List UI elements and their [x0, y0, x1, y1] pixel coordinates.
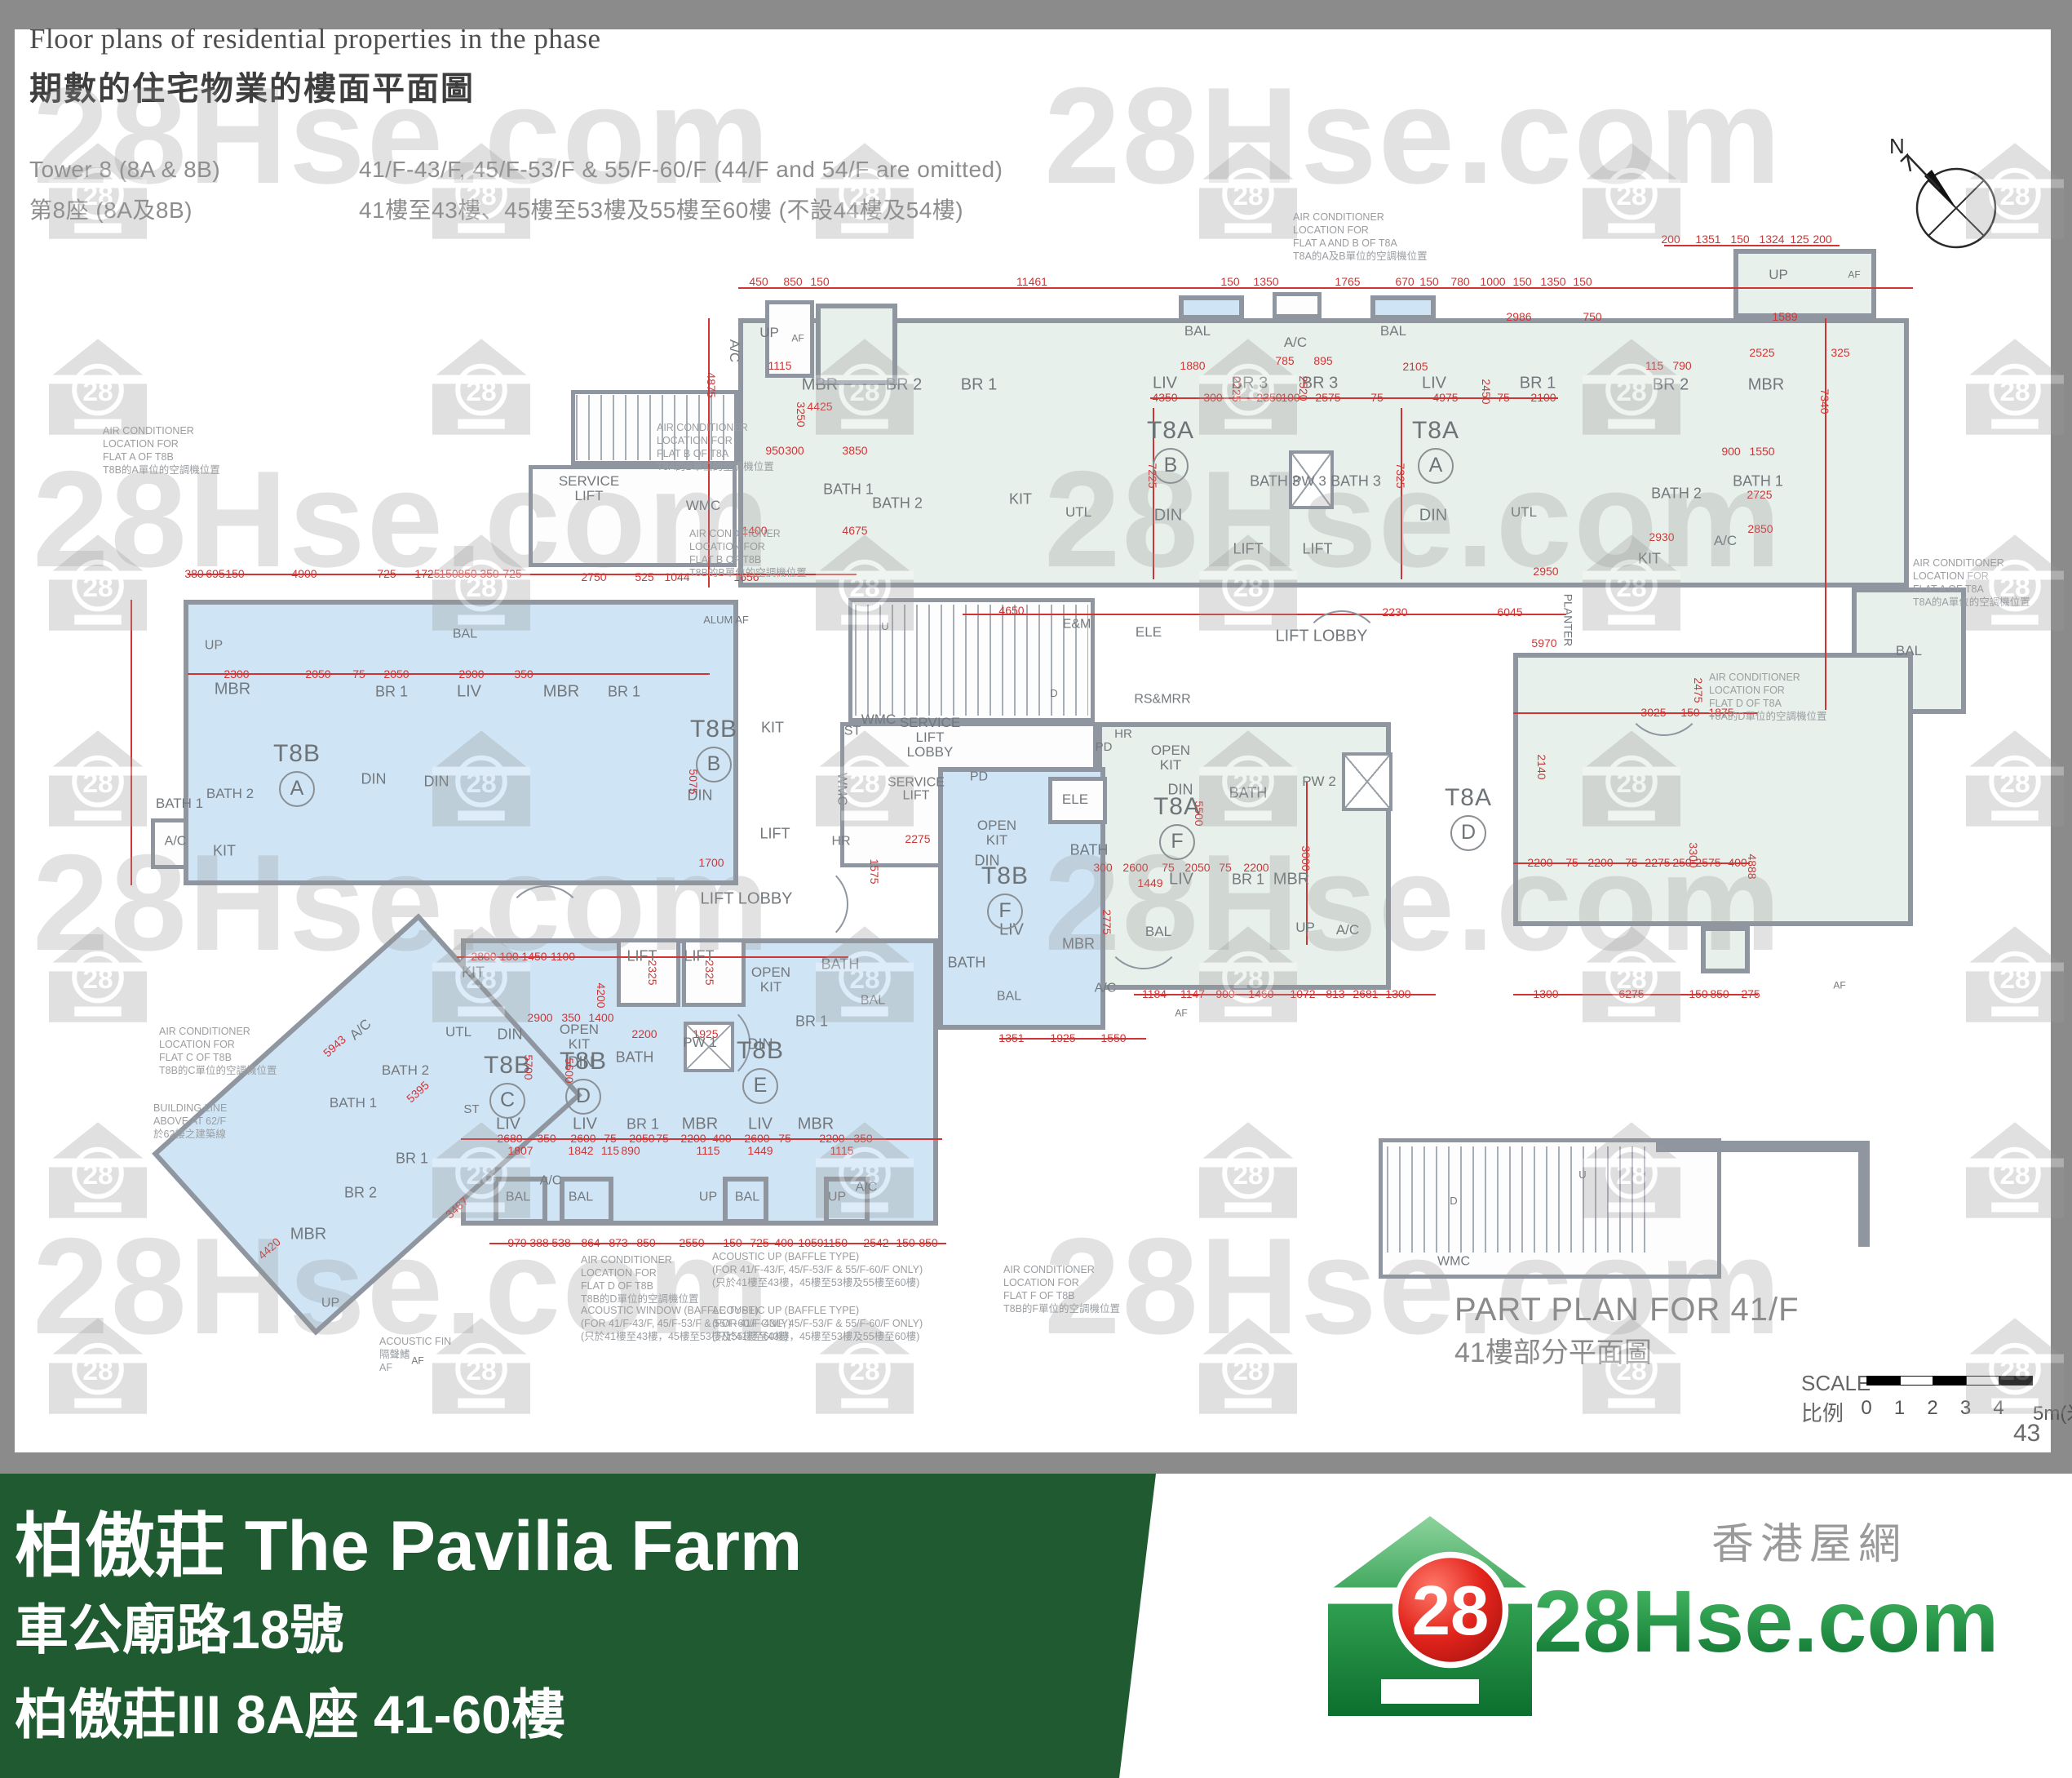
plan-note-line: T8A的B單位的空調機位置 — [657, 460, 774, 473]
room-label: DIN — [1154, 508, 1182, 525]
dimension-value: 2275 — [905, 832, 930, 845]
dimension-value: 2200 — [1243, 861, 1268, 874]
plan-note-line: LOCATION FOR — [103, 437, 220, 450]
unit-tower-label: T8A — [1412, 417, 1459, 445]
room-label: BR 1 — [961, 377, 997, 394]
scale-tick-label: 1 — [1894, 1397, 1905, 1420]
dimension-value: 1460 — [1248, 987, 1273, 1000]
dimension-value: 350 — [537, 1132, 556, 1145]
dimension-value: 1115 — [768, 359, 791, 372]
room-label: BAL — [735, 1191, 759, 1205]
page-number: 43 — [2013, 1420, 2040, 1448]
room-label: LIFT — [916, 730, 945, 745]
plan-note: BUILDING LINEABOVE AT 62/F於62樓之建築線 — [153, 1102, 227, 1141]
room-label: KIT — [986, 833, 1007, 848]
dimension-value: 4675 — [842, 524, 867, 537]
room-label: DIN — [498, 1027, 523, 1043]
plan-note: ACOUSTIC FIN隔聲鰭AF — [379, 1335, 451, 1374]
dimension-value: 2200 — [1587, 856, 1613, 869]
dimension-value: 3300 — [1687, 842, 1700, 867]
dimension-value: 2225 — [1230, 376, 1243, 401]
room-label: A/C — [727, 339, 742, 362]
dimension-line — [963, 614, 1566, 615]
dimension-value: 1765 — [1335, 275, 1360, 288]
plan-block — [1273, 292, 1322, 318]
unit-tower-label: T8A — [1147, 417, 1194, 445]
dimension-value: 4875 — [705, 372, 718, 397]
room-label: ELE — [1062, 792, 1088, 807]
dimension-value: 1880 — [1180, 359, 1205, 372]
dimension-value: 75 — [1565, 856, 1578, 869]
dimension-value: 1000 — [1480, 275, 1505, 288]
dimension-value: 2050 — [305, 667, 330, 681]
dimension-value: 2900 — [458, 667, 484, 681]
room-label: BAL — [1184, 324, 1211, 339]
dimension-value: 2200 — [1527, 856, 1552, 869]
dimension-value: 1400 — [588, 1011, 613, 1024]
room-label: BAL — [1380, 324, 1406, 339]
room-label: BR 1 — [795, 1014, 828, 1030]
room-label: PLANTER — [1562, 594, 1574, 647]
room-label: UTL — [445, 1025, 472, 1040]
dimension-value: 850 — [636, 1236, 655, 1249]
house-logo-icon: 28 — [1328, 1516, 1532, 1716]
room-label: BATH 3 — [1330, 474, 1381, 490]
dimension-value: 75 — [1497, 391, 1510, 404]
dimension-value: 75 — [352, 667, 365, 681]
plan-block — [1733, 249, 1876, 318]
plan-note: AIR CONDITIONERLOCATION FORFLAT D OF T8B… — [581, 1253, 698, 1306]
plan-note-line: FLAT D OF T8B — [581, 1279, 698, 1292]
plan-note-line: AIR CONDITIONER — [1913, 556, 2030, 570]
site-name-en: 28Hse.com — [1534, 1570, 1999, 1672]
dimension-value: 2050 — [1184, 861, 1210, 874]
plan-note-line: LOCATION FOR — [1709, 684, 1826, 697]
dimension-value: 1807 — [507, 1144, 533, 1157]
unit-flat-letter: C — [489, 1083, 525, 1119]
dimension-value: 850 — [919, 1236, 937, 1249]
room-label: A/C — [165, 836, 187, 849]
room-label: BATH 1 — [330, 1096, 377, 1111]
room-label: MBR — [682, 1116, 718, 1133]
svg-text:N: N — [1889, 134, 1905, 158]
plan-note-line: (FOR 41/F-43/F, 45/F-53/F & 55/F-60/F ON… — [712, 1263, 923, 1276]
room-label: U — [881, 621, 888, 632]
dimension-value: 350 — [514, 667, 533, 681]
room-label: LIV — [573, 1116, 597, 1133]
dimension-value: 2600 — [570, 1132, 595, 1145]
dimension-value: 1925 — [693, 1027, 718, 1040]
dimension-value: 4350 — [1152, 391, 1177, 404]
dimension-value: 2542 — [863, 1236, 888, 1249]
room-label: WMC — [835, 773, 848, 805]
dimension-value: 5075 — [687, 769, 700, 794]
room-label: MBR — [1273, 871, 1309, 889]
room-label: UP — [1295, 920, 1315, 935]
plan-note-line: (只於41樓至43樓，45樓至53樓及55樓至60樓) — [712, 1330, 923, 1343]
dimension-value: 75 — [1219, 861, 1232, 874]
scale-segment — [1933, 1376, 1967, 1386]
room-label: BR 1 — [375, 685, 408, 700]
unit-tower-label: T8B — [981, 862, 1029, 890]
scale-tick-label: 2 — [1927, 1397, 1937, 1420]
dimension-value: 115 — [601, 1144, 619, 1157]
plan-note-line: AIR CONDITIONER — [1293, 211, 1428, 224]
dimension-value: 150 — [1573, 275, 1592, 288]
scale-tick-label: 4 — [1993, 1397, 2003, 1420]
plan-note-line: LOCATION FOR — [159, 1038, 277, 1051]
room-label: BATH — [821, 957, 860, 973]
dimension-value: 300 — [785, 444, 804, 457]
dimension-value: 5600 — [563, 1057, 576, 1083]
dimension-value: 5500 — [1193, 800, 1206, 826]
room-label: BR 1 — [396, 1151, 428, 1167]
room-label: OPEN — [1151, 743, 1190, 758]
plan-note-line: ABOVE AT 62/F — [153, 1115, 227, 1128]
unit-flat-letter: F — [1159, 824, 1195, 860]
room-label: KIT — [213, 844, 236, 859]
dimension-value: 1351 — [998, 1031, 1024, 1044]
room-label: KIT — [1009, 492, 1032, 508]
room-label: AF — [1833, 981, 1845, 991]
plan-note-line: T8B的F單位的空調機位置 — [1003, 1302, 1120, 1315]
room-label: DIN — [1419, 508, 1447, 525]
plan-note-line: T8B的A單位的空調機位置 — [103, 463, 220, 477]
dimension-value: 1842 — [568, 1144, 593, 1157]
room-label: MBR — [1748, 377, 1784, 394]
dimension-value: 75 — [604, 1132, 617, 1145]
room-label: BR 2 — [344, 1186, 377, 1201]
dimension-value: 1350 — [1540, 275, 1565, 288]
dimension-value: 388 — [529, 1236, 548, 1249]
room-label: LIV — [1422, 375, 1446, 392]
dimension-value: 2725 — [1747, 488, 1772, 501]
unit-flat-letter: A — [1418, 448, 1454, 484]
dimension-value: 725 — [377, 567, 396, 580]
dimension-value: 2950 — [1533, 565, 1558, 578]
room-label: BAL — [453, 628, 477, 642]
plan-note-line: FLAT A OF T8A — [1913, 583, 2030, 596]
dimension-line — [131, 600, 132, 885]
dimension-value: 2050 — [383, 667, 409, 681]
unit-label: T8BA — [273, 740, 321, 807]
dimension-value: 670 — [1395, 275, 1414, 288]
room-label: A/C — [1284, 335, 1307, 350]
room-label: RS&MRR — [1134, 694, 1190, 707]
plan-note-line: T8A的A單位的空調機位置 — [1913, 596, 2030, 609]
room-label: BAL — [997, 991, 1021, 1004]
unit-label: T8AA — [1412, 417, 1459, 484]
dimension-value: 2986 — [1506, 310, 1531, 323]
plan-note-line: T8A的A及B單位的空調機位置 — [1293, 250, 1428, 263]
dimension-value: 1575 — [868, 858, 881, 884]
dimension-value: 3850 — [842, 444, 867, 457]
dimension-value: 1700 — [698, 856, 724, 869]
dimension-value: 275 — [1741, 987, 1760, 1000]
dimension-value: 1044 — [664, 570, 689, 583]
part-plan-title-zh: 41樓部分平面圖 — [1454, 1330, 1652, 1370]
dimension-value: 400 — [774, 1236, 793, 1249]
room-label: UP — [759, 326, 779, 340]
dimension-value: 1324 — [1759, 233, 1784, 246]
dimension-value: 7225 — [1146, 463, 1159, 488]
dimension-value: 350 — [561, 1011, 580, 1024]
dimension-value: 850 — [783, 275, 802, 288]
plan-note-line: LOCATION FOR — [1293, 224, 1428, 237]
room-label: BATH 2 — [382, 1063, 429, 1078]
dimension-value: 11461 — [1016, 275, 1047, 288]
dimension-value: 1725 — [414, 567, 440, 580]
plan-note-line: (FOR 41/F-43/F, 45/F-53/F & 55/F-60/F ON… — [712, 1317, 923, 1330]
plan-note-line: LOCATION FOR — [689, 540, 807, 553]
room-label: A/C — [1714, 534, 1737, 548]
dimension-value: 7340 — [1818, 388, 1831, 414]
unit-flat-letter: D — [1450, 815, 1486, 851]
room-label: MBR — [1062, 937, 1095, 952]
dimension-value: 150 — [439, 567, 458, 580]
dimension-value: 100 — [499, 950, 518, 963]
dimension-value: 4900 — [291, 567, 317, 580]
room-label: A/C — [540, 1175, 562, 1189]
dimension-value: 4650 — [998, 604, 1024, 617]
room-label: UP — [205, 640, 223, 654]
dimension-value: 695 — [206, 567, 224, 580]
plan-block — [1701, 926, 1750, 973]
dimension-value: 2750 — [581, 570, 606, 583]
room-label: KIT — [1160, 758, 1181, 773]
dimension-value: 850 — [1710, 987, 1729, 1000]
dimension-value: 538 — [551, 1236, 570, 1249]
dimension-value: 5700 — [522, 1054, 535, 1080]
room-label: BR 1 — [608, 685, 640, 700]
plan-note: AIR CONDITIONERLOCATION FORFLAT B OF T8B… — [689, 527, 807, 579]
room-label: BAL — [1145, 924, 1171, 939]
dimension-value: 813 — [1326, 987, 1344, 1000]
dimension-value: 979 — [507, 1236, 526, 1249]
dimension-line — [1825, 318, 1826, 710]
dimension-value: 785 — [1275, 354, 1294, 367]
dimension-value: 4425 — [807, 400, 832, 413]
dimension-value: 2050 — [629, 1132, 654, 1145]
plan-note-line: ACOUSTIC UP (BAFFLE TYPE) — [712, 1250, 923, 1263]
door-arc — [1301, 610, 1383, 692]
dimension-value: 864 — [581, 1236, 600, 1249]
scale-segment — [1866, 1376, 1901, 1386]
room-label: BATH 2 — [872, 496, 923, 512]
dimension-value: 6045 — [1497, 605, 1522, 619]
plan-note: AIR CONDITIONERLOCATION FORFLAT D OF T8A… — [1709, 671, 1826, 723]
dimension-value: 150 — [1419, 275, 1438, 288]
plan-note-line: BUILDING LINE — [153, 1102, 227, 1115]
dimension-value: 2681 — [1353, 987, 1378, 1000]
room-label: WMC — [861, 712, 896, 727]
scale-segment — [1999, 1376, 2033, 1386]
plan-note-line: ACOUSTIC UP (BAFFLE TYPE) — [712, 1304, 923, 1317]
room-label: PD — [1096, 741, 1113, 754]
dimension-value: 890 — [621, 1144, 640, 1157]
dimension-value: 1115 — [830, 1144, 853, 1157]
dimension-value: 75 — [1162, 861, 1175, 874]
dimension-value: 150 — [1689, 987, 1707, 1000]
dimension-value: 1925 — [1050, 1031, 1075, 1044]
dimension-value: 350 — [853, 1132, 872, 1145]
page-canvas: Floor plans of residential properties in… — [0, 0, 2072, 1778]
room-label: LIFT — [1302, 542, 1332, 557]
plan-block — [1342, 752, 1392, 811]
site-name-zh: 香港屋網 — [1711, 1510, 1907, 1571]
unit-flat-letter: F — [987, 893, 1023, 929]
room-label: BAL — [506, 1191, 530, 1205]
dimension-value: 125 — [1790, 233, 1809, 246]
room-label: BATH 1 — [1733, 474, 1783, 490]
room-label: UP — [828, 1191, 846, 1205]
dimension-value: 350 — [480, 567, 498, 580]
dimension-value: 2520 — [1297, 375, 1310, 401]
project-banner: 柏傲莊 The Pavilia Farm 車公廟路18號 柏傲莊III 8A座 … — [0, 1474, 1183, 1778]
plan-note-line: FLAT F OF T8B — [1003, 1289, 1120, 1302]
dimension-value: 2200 — [680, 1132, 706, 1145]
plan-note: AIR CONDITIONERLOCATION FORFLAT A OF T8B… — [103, 424, 220, 477]
dimension-value: 200 — [1813, 233, 1831, 246]
dimension-value: 750 — [1583, 310, 1601, 323]
room-label: ST — [463, 1103, 479, 1116]
dimension-value: 873 — [609, 1236, 627, 1249]
dimension-value: 525 — [635, 570, 653, 583]
plan-note-line: LOCATION FOR — [1913, 570, 2030, 583]
dimension-value: 1351 — [1695, 233, 1720, 246]
dimension-value: 2300 — [224, 667, 249, 681]
dimension-value: 150 — [1220, 275, 1239, 288]
plan-block — [816, 304, 897, 385]
dimension-value: 300 — [1203, 391, 1222, 404]
room-label: MBR — [798, 1116, 834, 1133]
dimension-value: 725 — [503, 567, 521, 580]
dimension-value: 1115 — [696, 1144, 719, 1157]
unit-tower-label: T8A — [1445, 784, 1492, 812]
room-label: BATH 2 — [1651, 486, 1702, 502]
dimension-value: 900 — [1721, 445, 1740, 458]
room-label: AF — [791, 334, 804, 344]
unit-flat-letter: D — [565, 1079, 601, 1115]
dimension-value: 5970 — [1531, 636, 1556, 650]
dimension-value: 1150 — [823, 1236, 848, 1249]
room-label: AF — [1848, 270, 1860, 281]
plan-note-line: FLAT C OF T8B — [159, 1051, 277, 1064]
unit-label: T8BE — [737, 1037, 784, 1104]
dimension-value: 2775 — [1100, 909, 1113, 934]
room-label: BATH 1 — [823, 482, 874, 498]
plan-note-line: T8A的D單位的空調機位置 — [1709, 710, 1826, 723]
plan-note-line: AIR CONDITIONER — [657, 421, 774, 434]
room-label: D — [1050, 688, 1057, 699]
unit-label: T8AD — [1445, 784, 1492, 851]
unit-flat-letter: A — [279, 771, 315, 807]
dimension-value: 150 — [225, 567, 244, 580]
door-arc — [1103, 888, 1184, 969]
room-label: UP — [321, 1297, 339, 1311]
room-label: MBR — [802, 377, 838, 394]
dimension-line — [738, 287, 1913, 289]
dimension-value: 2850 — [1747, 522, 1773, 535]
dimension-value: 2350 — [1256, 391, 1282, 404]
plan-note: AIR CONDITIONERLOCATION FORFLAT A OF T8A… — [1913, 556, 2030, 609]
dimension-value: 3025 — [1640, 706, 1666, 719]
room-label: PD — [970, 771, 988, 785]
plan-block — [1387, 1146, 1656, 1253]
dimension-value: 3250 — [795, 401, 808, 427]
dimension-value: 2930 — [1649, 530, 1674, 543]
dimension-value: 115 — [1645, 359, 1663, 372]
dimension-value: 150 — [1512, 275, 1531, 288]
dimension-value: 895 — [1313, 354, 1332, 367]
svg-text:28: 28 — [1412, 1572, 1490, 1650]
room-label: KIT — [1638, 552, 1661, 567]
room-label: LIFT — [903, 790, 930, 804]
room-label: BATH — [948, 956, 986, 971]
project-name: 柏傲莊 The Pavilia Farm — [15, 1488, 802, 1590]
scale-tick-label: 3 — [1960, 1397, 1971, 1420]
floor-plan-drawing: MBRBR 2BR 1LIVBR 3BR 3LIVBR 1BR 2MBRBALA… — [0, 0, 2072, 1452]
dimension-value: 1449 — [1137, 876, 1162, 889]
room-label: MBR — [215, 681, 250, 698]
plan-note-line: FLAT B OF T8A — [657, 447, 774, 460]
room-label: SERVICE — [559, 474, 619, 489]
plan-block — [1179, 295, 1244, 320]
dimension-value: 1100 — [551, 950, 575, 963]
room-label: PW 3 — [1292, 474, 1326, 489]
room-label: WMC — [686, 499, 720, 513]
dimension-value: 725 — [750, 1236, 768, 1249]
room-label: DIN — [361, 772, 387, 787]
plan-block — [1656, 1141, 1870, 1152]
room-label: U — [1578, 1169, 1586, 1181]
project-address: 車公廟路18號 — [15, 1586, 343, 1665]
room-label: ST — [844, 725, 861, 739]
dimension-value: 850 — [458, 567, 476, 580]
plan-note-line: AIR CONDITIONER — [689, 527, 807, 540]
plan-note: ACOUSTIC UP (BAFFLE TYPE)(FOR 41/F-43/F,… — [712, 1304, 923, 1343]
plan-note: AIR CONDITIONERLOCATION FORFLAT A AND B … — [1293, 211, 1428, 263]
dimension-value: 4975 — [1432, 391, 1458, 404]
dimension-value: 380 — [184, 567, 203, 580]
unit-tower-label: T8B — [737, 1037, 784, 1065]
room-label: UP — [1769, 268, 1788, 282]
dimension-value: 2230 — [1382, 605, 1407, 619]
plan-note-line: AIR CONDITIONER — [581, 1253, 698, 1266]
dimension-value: 2680 — [497, 1132, 522, 1145]
dimension-value: 780 — [1450, 275, 1469, 288]
dimension-value: 300 — [1093, 861, 1112, 874]
dimension-value: 75 — [778, 1132, 791, 1145]
north-compass-icon: N — [1883, 122, 2013, 261]
dimension-value: 790 — [1672, 359, 1691, 372]
room-label: KIT — [462, 965, 485, 981]
dimension-line — [1401, 408, 1402, 579]
dimension-value: 1300 — [1533, 987, 1558, 1000]
room-label: KIT — [761, 721, 784, 736]
room-label: LIFT — [1233, 542, 1263, 557]
scale-segment — [1966, 1376, 2000, 1386]
unit-label: T8BF — [981, 862, 1029, 929]
unit-flat-letter: E — [742, 1068, 778, 1104]
dimension-value: 6275 — [1618, 987, 1644, 1000]
dimension-value: 450 — [749, 275, 768, 288]
room-label: A/C — [856, 1182, 878, 1195]
room-label: BR 1 — [1520, 375, 1556, 392]
room-label: MBR — [543, 684, 579, 701]
dimension-value: 150 — [810, 275, 829, 288]
dimension-value: 2140 — [1535, 754, 1548, 779]
